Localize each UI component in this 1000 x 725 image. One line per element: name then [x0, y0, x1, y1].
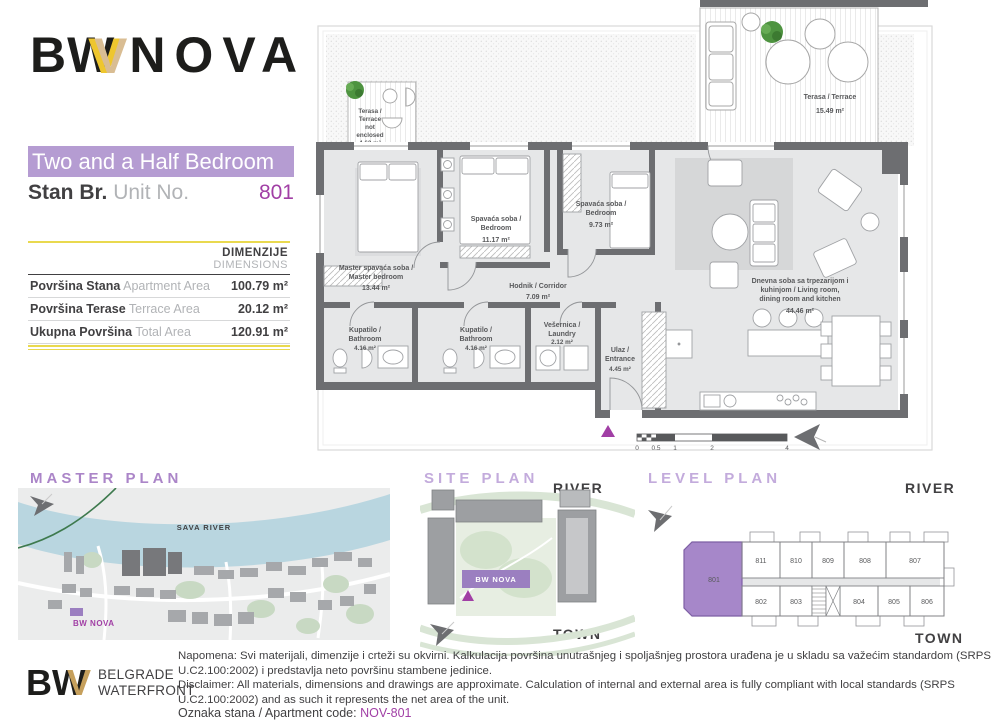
unit-number: 806 [921, 599, 933, 606]
row-label-en: Terrace Area [129, 302, 200, 316]
table-header: DIMENZIJE DIMENSIONS [28, 243, 290, 275]
closet [642, 312, 666, 408]
unit-number: 807 [909, 558, 921, 565]
scale-tick: 0 [635, 445, 639, 452]
room-label: Terrace [359, 116, 382, 123]
vanity [378, 346, 408, 368]
armchair [710, 262, 738, 288]
legal-text: Napomena: Svi materijali, dimenzije i cr… [178, 649, 996, 707]
room-label: Master spavaća soba / [339, 265, 413, 272]
room-label: Bathroom [348, 336, 381, 343]
room-label: Terasa / Terrace [804, 94, 857, 101]
apartment-type-banner: Two and a Half Bedroom [28, 146, 294, 177]
toilet [443, 349, 457, 367]
floor-plan-drawing: Terasa / Terrace 15.49 m² Terasa / Terra… [310, 0, 940, 462]
room-label: Kupatilo / [460, 327, 492, 334]
unit-label-sr: Stan Br. [28, 181, 107, 204]
scale-bar: 0 0.5 1 2 4 [635, 434, 789, 452]
room-area: 15.49 m² [816, 108, 845, 115]
nova-logo-text: NOVA [129, 27, 306, 83]
room-label: Hodnik / Corridor [509, 283, 567, 290]
stairs [812, 586, 826, 616]
room-label: Laundry [548, 331, 576, 338]
bw-mark: BWV [26, 662, 86, 703]
room-label: Ulaz / [611, 347, 629, 354]
vanity [490, 346, 520, 368]
level-plan-title: LEVEL PLAN [648, 470, 781, 487]
terrace-chair [828, 42, 868, 82]
terrace-small: Terasa / Terrace not enclosed 4.63 m² [346, 81, 416, 147]
north-arrow-icon [648, 506, 672, 532]
room-label: Terasa / [358, 108, 382, 115]
table-row: Površina Stana Apartment Area 100.79 m² [28, 275, 290, 298]
level-plan-drawing: 801 811 810 809 808 807 802 803 804 805 … [640, 488, 1000, 648]
room-area: 4.16 m² [465, 345, 487, 352]
belgrade-waterfront-logo: BWV BELGRADE WATERFRONT [26, 662, 86, 704]
gold-v-icon: V [67, 662, 91, 704]
table-row: Površina Terase Terrace Area 20.12 m² [28, 298, 290, 321]
room-label: Bedroom [586, 210, 617, 217]
unit-number: 803 [790, 599, 802, 606]
room-area: 11.17 m² [482, 237, 510, 244]
building-roof [566, 518, 588, 594]
corridor [740, 578, 940, 586]
room-label: enclosed [356, 132, 383, 139]
sava-river-label: SAVA RIVER [177, 523, 231, 532]
row-value: 120.91 m² [231, 325, 288, 339]
room-label: Spavaća soba / [576, 201, 627, 208]
master-plan-title: MASTER PLAN [30, 470, 182, 487]
north-arrow-icon [794, 424, 826, 450]
room-label: Bathroom [459, 336, 492, 343]
table-header-en: DIMENSIONS [30, 259, 288, 271]
bw-nova-logo: BWVVNOVA [30, 26, 306, 84]
side-table [861, 213, 879, 231]
laundry-counter [564, 346, 588, 370]
terrace-large: Terasa / Terrace 15.49 m² [700, 8, 878, 146]
buildings-dark [122, 548, 182, 576]
apartment-code-line: Oznaka stana / Apartment code: NOV-801 [178, 706, 411, 720]
plant-icon [761, 21, 783, 43]
terrace-chair [805, 19, 835, 49]
room-label: Vešernica / [544, 322, 581, 329]
room-area: 44.46 m² [786, 308, 815, 315]
unit-number: 801 [708, 577, 720, 584]
row-label-sr: Površina Stana [30, 279, 120, 293]
apartment-code-label: Oznaka stana / Apartment code: [178, 706, 357, 720]
row-label-en: Apartment Area [123, 279, 210, 293]
bw-nova-map-label: BW NOVA [73, 619, 115, 628]
unit-number: 801 [259, 181, 294, 205]
row-label-en: Total Area [135, 325, 191, 339]
terrace-sofa [706, 22, 736, 110]
napomena-text: Napomena: Svi materijali, dimenzije i cr… [178, 649, 996, 678]
room-label: Master bedroom [349, 274, 403, 281]
unit-number-row: Stan Br. Unit No. 801 [28, 181, 294, 205]
armchair [708, 160, 742, 186]
room-label: dining room and kitchen [759, 296, 840, 303]
toilet [333, 349, 347, 367]
room-area: 7.09 m² [526, 294, 551, 301]
unit-label-en: Unit No. [113, 181, 189, 204]
row-value: 100.79 m² [231, 279, 288, 293]
room-area: 4.16 m² [354, 345, 376, 352]
apartment-code-value: NOV-801 [360, 706, 411, 720]
bw-nova-site-label: BW NOVA [475, 575, 516, 584]
row-value: 20.12 m² [238, 302, 288, 316]
unit-number: 805 [888, 599, 900, 606]
disclaimer-text: Disclaimer: All materials, dimensions an… [178, 678, 996, 707]
room-area: 9.73 m² [589, 222, 614, 229]
table-bottom-rule-2 [28, 349, 290, 350]
unit-number: 804 [853, 599, 865, 606]
gold-v-shadow-icon: V [94, 27, 128, 85]
plant-icon [346, 81, 364, 99]
table-bottom-rule [28, 345, 290, 347]
room-label: kuhinjom / Living room, [761, 287, 840, 294]
terrace-fixture [383, 89, 397, 103]
kitchen-island [748, 330, 828, 356]
scale-tick: 2 [710, 445, 714, 452]
table-header-sr: DIMENZIJE [30, 247, 288, 259]
room-label: Dnevna soba sa trpezarijom i [752, 278, 849, 285]
room-label: Spavaća soba / [471, 216, 522, 223]
terrace-chair [766, 40, 810, 84]
dimensions-table: DIMENZIJE DIMENSIONS Površina Stana Apar… [28, 241, 290, 350]
scale-tick: 4 [785, 445, 789, 452]
room-label: Kupatilo / [349, 327, 381, 334]
terrace-table [742, 13, 760, 31]
row-label-sr: Ukupna Površina [30, 325, 132, 339]
unit-number: 808 [859, 558, 871, 565]
room-area: 4.45 m² [609, 366, 631, 373]
bench [460, 246, 530, 258]
scale-tick: 0.5 [651, 445, 660, 452]
unit-number: 811 [755, 558, 766, 565]
unit-number: 809 [822, 558, 834, 565]
site-plan-map: BW NOVA [420, 478, 635, 656]
coffee-table [712, 214, 748, 250]
room-label: Bedroom [481, 225, 512, 232]
scale-tick: 1 [673, 445, 677, 452]
park-lawn [460, 531, 512, 569]
unit-number: 810 [790, 558, 802, 565]
master-plan-map: SAVA RIVER BW NOVA [18, 488, 390, 640]
table-row: Ukupna Površina Total Area 120.91 m² [28, 321, 290, 344]
unit-number: 802 [755, 599, 767, 606]
room-label: not [365, 124, 376, 131]
room-label: Entrance [605, 356, 635, 363]
room-area: 13.44 m² [362, 285, 391, 292]
room-area: 2.12 m² [551, 339, 573, 346]
highlighted-building [70, 608, 83, 616]
dining-table [832, 316, 880, 386]
row-label-sr: Površina Terase [30, 302, 126, 316]
entrance-marker-icon [601, 425, 615, 437]
bw-logo-letters: BWVV [30, 27, 115, 83]
